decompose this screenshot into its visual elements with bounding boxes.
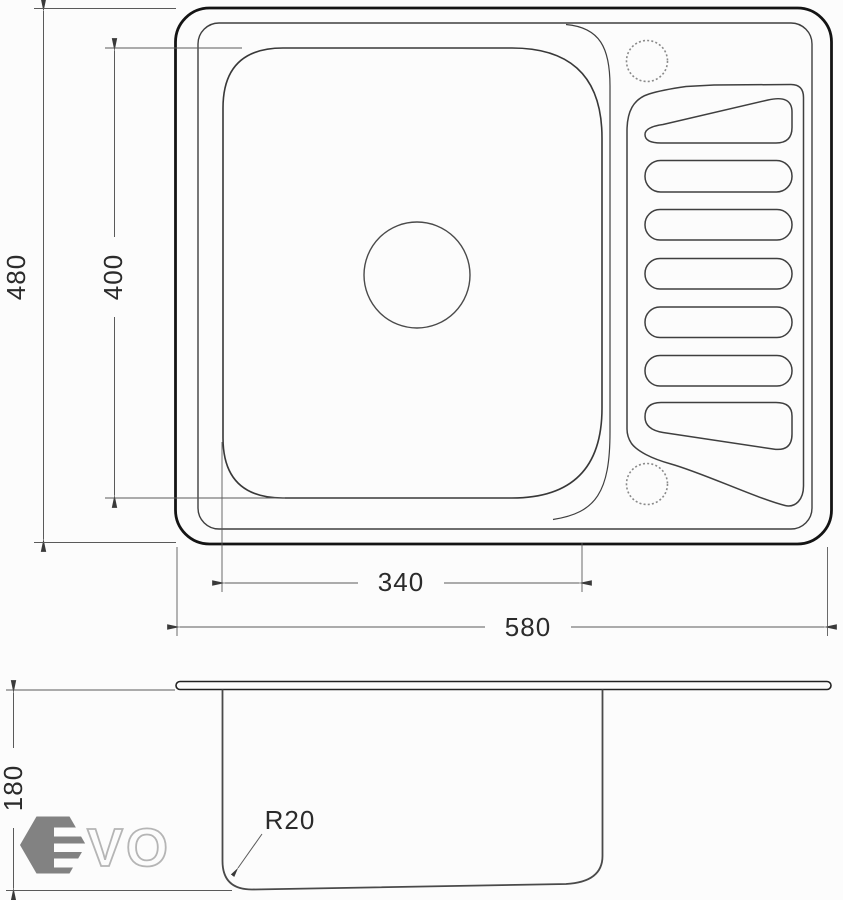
logo-evo: VO [20, 817, 171, 879]
bowl-contour [223, 48, 602, 498]
logo-letters: VO [87, 818, 171, 878]
radius-callout-label: R20 [245, 807, 335, 833]
rim-flange-bar [176, 682, 831, 690]
sink-outer-edge [176, 8, 832, 544]
dim-label-180: 180 [0, 748, 26, 828]
dim-label-340: 340 [358, 569, 444, 595]
radius-leader-line [238, 834, 262, 868]
drainboard-slot-5 [645, 307, 792, 338]
drainboard-slot-7 [645, 403, 792, 450]
dim-label-580: 580 [485, 614, 571, 640]
drainboard-slot-6 [645, 356, 792, 387]
faucet-hole-top [627, 41, 668, 82]
logo-e-stripe-3 [54, 859, 91, 868]
faucet-hole-bottom [627, 464, 668, 505]
dim-label-400: 400 [100, 237, 126, 317]
bowl-section-profile [223, 690, 603, 890]
logo-e-stripe-2 [54, 844, 91, 853]
drain-hole [364, 222, 470, 328]
drawing-linework: VO [0, 0, 843, 900]
top-view [176, 8, 832, 544]
dim-label-480: 480 [3, 237, 29, 317]
sink-rim-line [198, 23, 812, 529]
drainboard-slot-2 [645, 161, 792, 193]
drainboard-slots [645, 99, 792, 450]
side-view [176, 682, 831, 890]
sink-technical-drawing: VO 480 400 340 580 180 R20 [0, 0, 843, 900]
logo-e-stripe-1 [54, 828, 91, 837]
drainboard-slot-3 [645, 210, 792, 241]
dimensions [6, 9, 828, 891]
drainboard-slot-4 [645, 259, 792, 290]
drainboard-slot-1 [645, 99, 792, 143]
drainboard-contour [627, 85, 804, 506]
